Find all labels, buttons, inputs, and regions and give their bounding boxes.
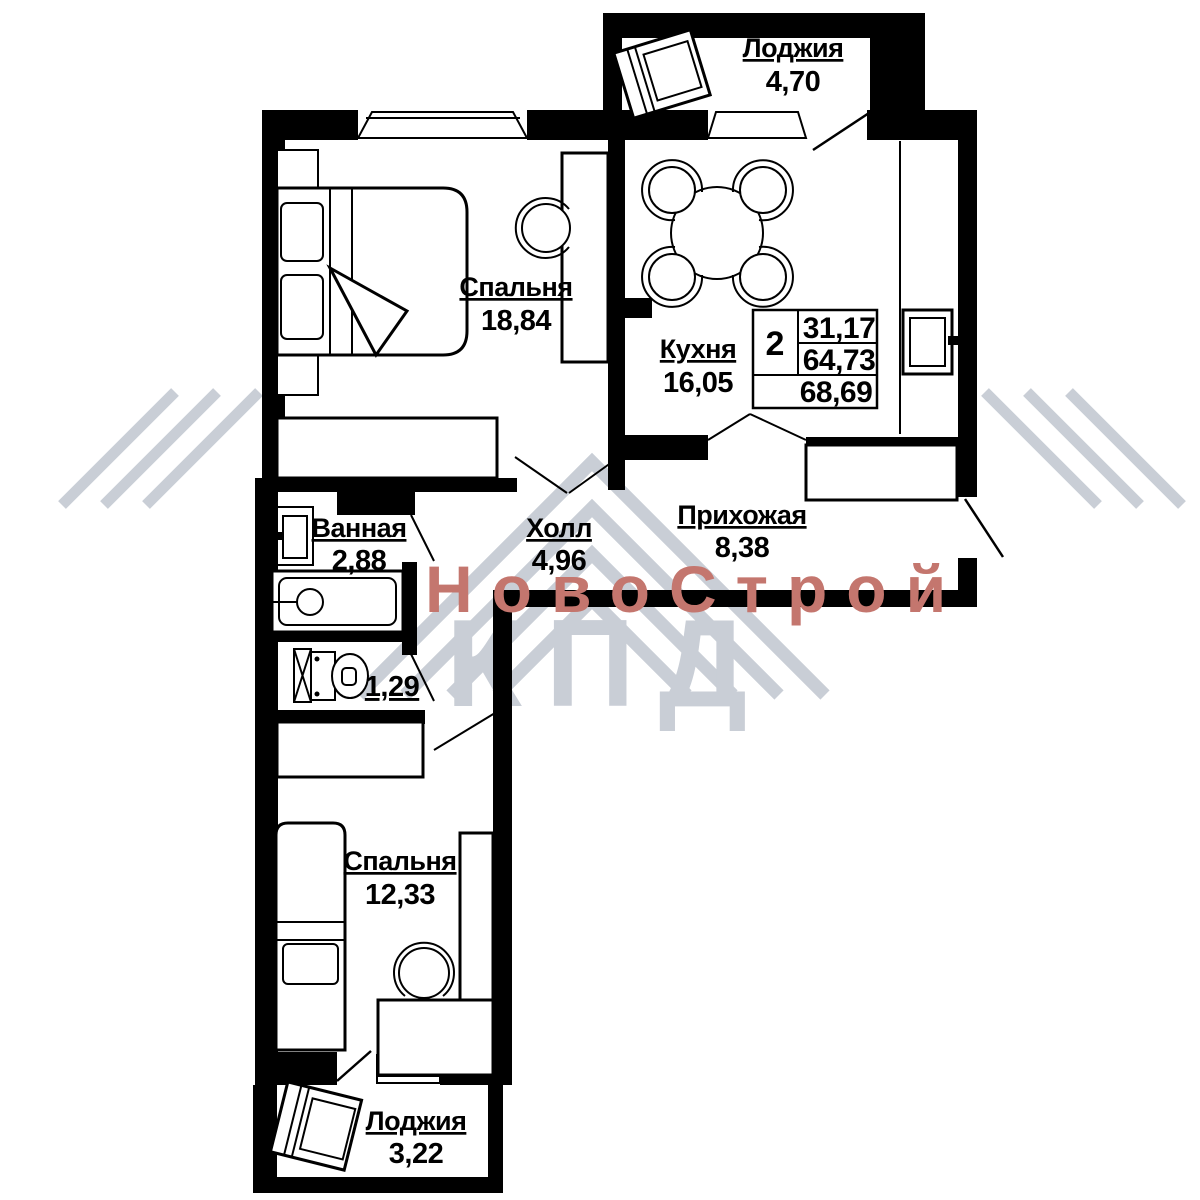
wardrobe — [277, 418, 497, 478]
wall — [255, 1052, 337, 1085]
window-loggia-top — [708, 112, 806, 138]
pillow — [281, 203, 323, 261]
chair — [740, 167, 786, 213]
wall — [608, 298, 652, 318]
furniture-wc — [294, 649, 368, 702]
room-name: Кухня — [660, 334, 736, 364]
toilet-bowl — [332, 654, 368, 698]
room-name: Лоджия — [743, 33, 844, 63]
rooms-count-value: 2 — [766, 325, 785, 363]
room-name: Холл — [526, 513, 592, 543]
pillow — [283, 944, 338, 984]
kitchen-appliance-inner — [910, 318, 945, 366]
room-label-bathroom: Ванная 2,88 — [312, 513, 407, 577]
wall — [527, 110, 708, 140]
room-name: Ванная — [312, 513, 407, 543]
floor-plan-drawing: КПД — [0, 0, 1200, 1200]
faucet — [264, 532, 284, 540]
chair — [399, 948, 449, 998]
room-area: 18,84 — [481, 305, 551, 337]
room-area: 3,22 — [389, 1138, 443, 1170]
wall — [958, 110, 977, 497]
toilet-bolt — [315, 692, 320, 697]
toilet-bolt — [315, 657, 320, 662]
room-name: Прихожая — [677, 500, 806, 530]
room-label-loggia-top: Лоджия 4,70 — [743, 33, 844, 98]
room-label-loggia-bottom: Лоджия 3,22 — [366, 1106, 467, 1170]
wardrobe — [806, 445, 957, 500]
desk — [378, 1000, 493, 1075]
info-table: 2 31,17 64,73 68,69 — [753, 310, 877, 409]
room-area: 16,05 — [663, 367, 733, 399]
opening-bedroom-1-left — [515, 457, 567, 493]
chair — [522, 204, 570, 252]
window-bedroom-1 — [358, 112, 527, 138]
cabinet — [277, 722, 423, 777]
furniture-bedroom-1 — [277, 150, 608, 478]
wall — [622, 435, 708, 460]
chair — [649, 167, 695, 213]
room-label-wc: 1,29 — [365, 671, 420, 703]
wall — [867, 110, 958, 140]
total-area-value: 68,69 — [800, 376, 873, 409]
room-name: Спальня — [459, 272, 572, 302]
chair — [740, 254, 786, 300]
nightstand — [277, 355, 318, 395]
furniture-entry — [806, 445, 957, 500]
appliance-handle — [948, 336, 965, 345]
room-area: 12,33 — [365, 879, 435, 911]
wall — [337, 488, 415, 515]
room-area: 1,29 — [365, 671, 420, 703]
room-name: Спальня — [343, 846, 456, 876]
door-loggia-bottom-swing — [337, 1051, 371, 1081]
opening-kitchen-left — [708, 414, 750, 440]
wall — [253, 1085, 277, 1177]
opening-kitchen-right — [750, 414, 806, 440]
room-area: 2,88 — [332, 545, 387, 577]
wall — [488, 1085, 503, 1177]
desk — [562, 153, 608, 362]
floor-plan-page: КПД — [0, 0, 1200, 1200]
single-bed — [276, 823, 345, 1050]
bathtub-drain — [297, 589, 323, 615]
room-name: Лоджия — [366, 1106, 467, 1136]
living-area-value: 31,17 — [803, 312, 876, 345]
room-label-bedroom-1: Спальня 18,84 — [459, 272, 572, 337]
wardrobe — [460, 833, 493, 1000]
watermark-brand-text: НовоСтрой — [425, 552, 965, 626]
apartment-area-value: 64,73 — [803, 344, 876, 377]
room-area: 4,70 — [766, 66, 820, 98]
wall — [870, 13, 925, 110]
furniture-loggia-bottom — [270, 1082, 361, 1170]
wall — [493, 590, 512, 1085]
door-entrance-swing — [965, 499, 1003, 557]
room-label-bedroom-2: Спальня 12,33 — [343, 846, 456, 911]
furniture-loggia-top — [614, 30, 710, 118]
room-label-kitchen: Кухня 16,05 — [660, 334, 736, 399]
wall — [253, 1177, 503, 1193]
chair — [649, 254, 695, 300]
nightstand — [277, 150, 318, 188]
door-loggia-top-swing — [813, 113, 869, 150]
pillow — [281, 275, 323, 339]
